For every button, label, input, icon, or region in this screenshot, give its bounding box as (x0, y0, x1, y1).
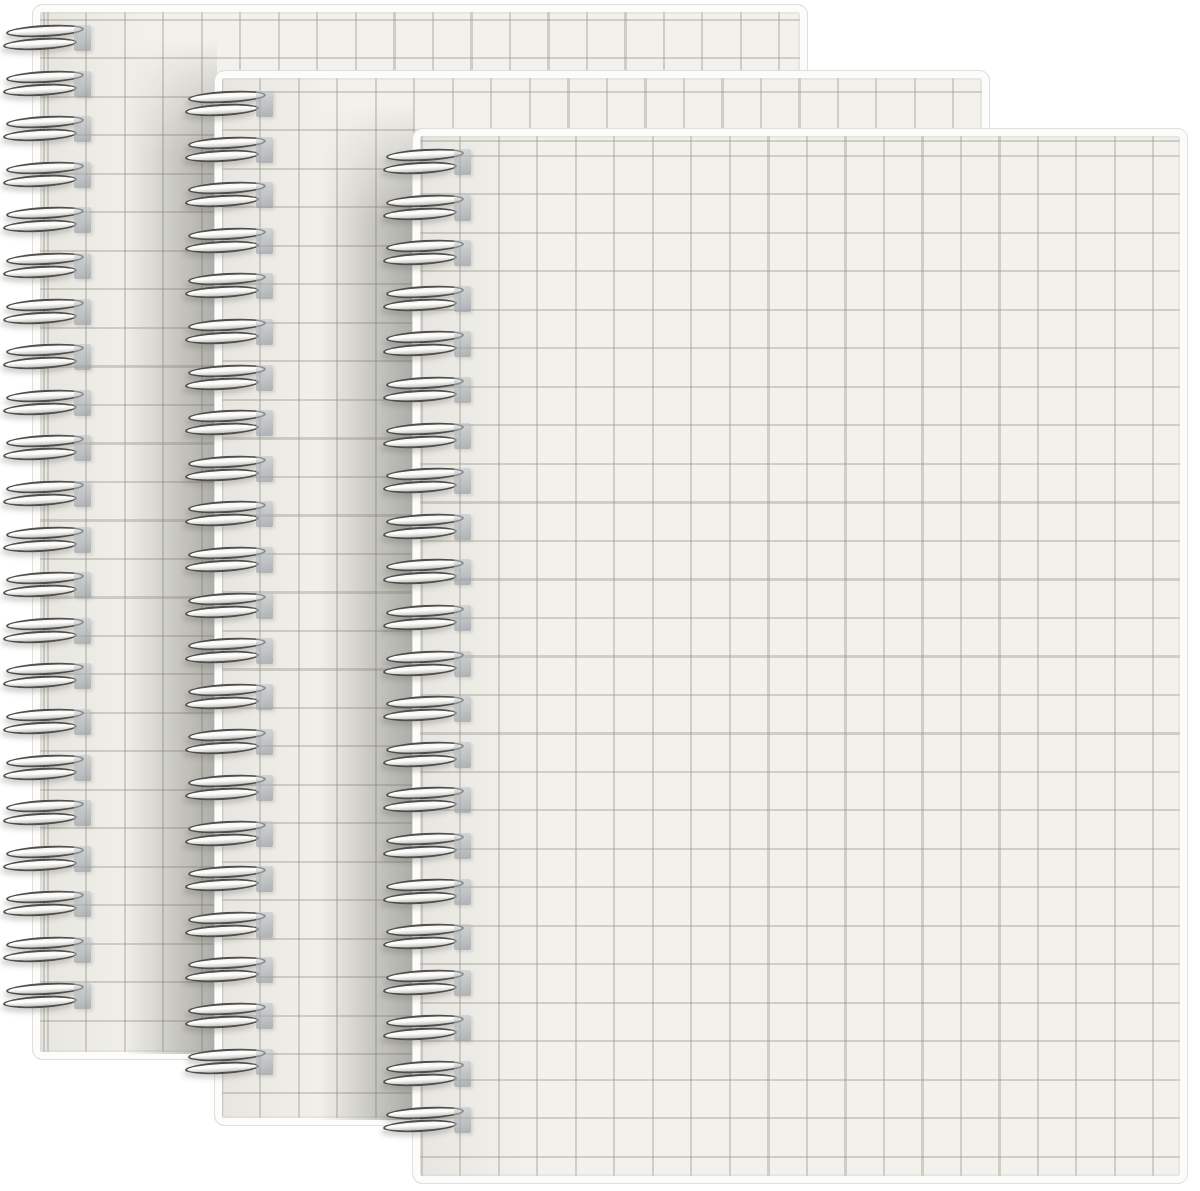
wire-loop-lower (185, 740, 260, 756)
wire-loop-lower (383, 844, 458, 860)
wire-loop-upper (6, 935, 85, 951)
wire-coil (386, 377, 474, 404)
wire-coil (386, 240, 474, 267)
wire-loop-lower (185, 421, 260, 437)
wire-coil (188, 821, 276, 848)
wire-loop-lower (3, 766, 78, 782)
wire-coil (188, 547, 276, 574)
wire-loop-upper (386, 603, 465, 619)
wire-loop-upper (6, 69, 85, 85)
punch-hole (74, 25, 91, 51)
punch-hole (74, 663, 91, 689)
wire-loop-upper (188, 135, 267, 151)
wire-coil (6, 846, 94, 873)
punch-hole (454, 879, 471, 905)
wire-loop-upper (386, 421, 465, 437)
wire-coil (6, 527, 94, 554)
wire-loop-upper (386, 877, 465, 893)
punch-hole (454, 377, 471, 403)
wire-loop-lower (3, 264, 78, 280)
wire-loop-lower (3, 857, 78, 873)
wire-loop-upper (188, 89, 267, 105)
wire-loop-lower (383, 206, 458, 222)
wire-loop-lower (3, 674, 78, 690)
wire-coil (386, 696, 474, 723)
wire-loop-lower (383, 1026, 458, 1042)
wire-loop-lower (3, 811, 78, 827)
wire-loop-lower (3, 948, 78, 964)
wire-coil (188, 1049, 276, 1076)
wire-loop-lower (185, 649, 260, 665)
wire-loop-upper (386, 147, 465, 163)
wire-coil (6, 618, 94, 645)
punch-hole (74, 572, 91, 598)
wire-loop-upper (6, 251, 85, 267)
wire-loop-lower (185, 512, 260, 528)
wire-loop-lower (383, 798, 458, 814)
punch-hole (256, 729, 273, 755)
punch-hole (256, 775, 273, 801)
wire-loop-lower (185, 695, 260, 711)
wire-loop-upper (6, 160, 85, 176)
wire-loop-lower (185, 832, 260, 848)
punch-hole (454, 195, 471, 221)
wire-loop-upper (188, 773, 267, 789)
wire-loop-lower (185, 376, 260, 392)
wire-loop-upper (6, 616, 85, 632)
punch-hole (454, 696, 471, 722)
wire-coil (6, 709, 94, 736)
wire-loop-lower (383, 1118, 458, 1134)
punch-hole (454, 1107, 471, 1133)
wire-loop-lower (185, 102, 260, 118)
wire-loop-lower (3, 994, 78, 1010)
wire-coil (386, 651, 474, 678)
wire-loop-upper (6, 23, 85, 39)
wire-loop-lower (383, 525, 458, 541)
wire-loop-lower (383, 479, 458, 495)
punch-hole (454, 514, 471, 540)
notebook-front (412, 128, 1188, 1184)
wire-coil (386, 1107, 474, 1134)
wire-coil (386, 195, 474, 222)
punch-hole (256, 547, 273, 573)
wire-loop-upper (188, 1001, 267, 1017)
wire-coil (188, 638, 276, 665)
wire-loop-upper (188, 545, 267, 561)
wire-loop-upper (386, 1059, 465, 1075)
wire-coil (6, 116, 94, 143)
wire-loop-upper (188, 226, 267, 242)
wire-coil (188, 273, 276, 300)
punch-hole (256, 273, 273, 299)
wire-loop-upper (6, 479, 85, 495)
punch-hole (256, 228, 273, 254)
wire-coil (386, 559, 474, 586)
wire-loop-lower (185, 467, 260, 483)
wire-loop-upper (188, 317, 267, 333)
punch-hole (454, 286, 471, 312)
punch-hole (74, 983, 91, 1009)
notebook-cover-grid (412, 128, 1188, 1184)
wire-coil (188, 729, 276, 756)
punch-hole (74, 390, 91, 416)
wire-coil (188, 593, 276, 620)
punch-hole (74, 846, 91, 872)
wire-loop-upper (386, 512, 465, 528)
wire-loop-upper (188, 1047, 267, 1063)
wire-coil (188, 91, 276, 118)
wire-coil (386, 742, 474, 769)
punch-hole (454, 970, 471, 996)
wire-loop-upper (6, 707, 85, 723)
wire-loop-lower (185, 786, 260, 802)
wire-coil (188, 410, 276, 437)
wire-loop-upper (386, 284, 465, 300)
wire-loop-upper (188, 910, 267, 926)
punch-hole (74, 481, 91, 507)
wire-loop-lower (383, 388, 458, 404)
punch-hole (454, 833, 471, 859)
punch-hole (256, 866, 273, 892)
punch-hole (454, 559, 471, 585)
punch-hole (74, 937, 91, 963)
punch-hole (256, 821, 273, 847)
wire-loop-upper (6, 753, 85, 769)
punch-hole (74, 162, 91, 188)
punch-hole (454, 787, 471, 813)
wire-loop-upper (386, 193, 465, 209)
wire-loop-upper (6, 297, 85, 313)
wire-loop-lower (383, 707, 458, 723)
punch-hole (454, 240, 471, 266)
wire-coil (188, 137, 276, 164)
wire-coil (188, 365, 276, 392)
wire-coil (6, 71, 94, 98)
wire-coil (386, 787, 474, 814)
wire-loop-lower (3, 720, 78, 736)
wire-loop-lower (185, 1014, 260, 1030)
wire-coil (188, 957, 276, 984)
punch-hole (256, 456, 273, 482)
wire-loop-lower (383, 251, 458, 267)
wire-coil (188, 866, 276, 893)
punch-hole (74, 299, 91, 325)
wire-loop-lower (185, 923, 260, 939)
wire-coil (188, 228, 276, 255)
wire-loop-upper (386, 740, 465, 756)
wire-loop-lower (185, 239, 260, 255)
punch-hole (256, 1049, 273, 1075)
wire-loop-lower (3, 446, 78, 462)
punch-hole (256, 593, 273, 619)
wire-coil (188, 182, 276, 209)
wire-loop-lower (185, 877, 260, 893)
punch-hole (74, 435, 91, 461)
wire-loop-lower (185, 148, 260, 164)
wire-loop-upper (386, 375, 465, 391)
wire-loop-upper (188, 682, 267, 698)
wire-loop-lower (3, 902, 78, 918)
wire-coil (6, 755, 94, 782)
wire-coil (6, 299, 94, 326)
wire-loop-lower (3, 218, 78, 234)
wire-loop-lower (383, 890, 458, 906)
wire-coil (188, 501, 276, 528)
wire-coil (6, 800, 94, 827)
wire-coil (6, 435, 94, 462)
punch-hole (454, 1061, 471, 1087)
wire-loop-lower (185, 193, 260, 209)
wire-loop-upper (188, 363, 267, 379)
wire-loop-lower (185, 968, 260, 984)
punch-hole (256, 1003, 273, 1029)
punch-hole (256, 957, 273, 983)
wire-coil (386, 149, 474, 176)
wire-loop-lower (185, 330, 260, 346)
punch-hole (454, 423, 471, 449)
wire-loop-upper (6, 981, 85, 997)
wire-coil (386, 1061, 474, 1088)
wire-coil (188, 456, 276, 483)
punch-hole (256, 410, 273, 436)
product-photo-scene (0, 0, 1200, 1191)
wire-coil (386, 423, 474, 450)
wire-coil (6, 937, 94, 964)
punch-hole (74, 800, 91, 826)
punch-hole (74, 253, 91, 279)
wire-coil (386, 879, 474, 906)
punch-hole (74, 344, 91, 370)
wire-coil (188, 1003, 276, 1030)
punch-hole (256, 319, 273, 345)
punch-hole (454, 651, 471, 677)
wire-loop-upper (6, 844, 85, 860)
wire-coil (188, 684, 276, 711)
wire-loop-lower (383, 570, 458, 586)
wire-loop-upper (386, 649, 465, 665)
wire-coil (188, 775, 276, 802)
wire-coil (6, 891, 94, 918)
punch-hole (454, 1015, 471, 1041)
wire-loop-lower (383, 342, 458, 358)
wire-loop-lower (3, 538, 78, 554)
punch-hole (454, 742, 471, 768)
wire-loop-upper (386, 968, 465, 984)
wire-loop-lower (383, 616, 458, 632)
punch-hole (454, 924, 471, 950)
wire-coil (6, 207, 94, 234)
wire-loop-lower (3, 310, 78, 326)
punch-hole (74, 116, 91, 142)
punch-hole (454, 331, 471, 357)
wire-loop-lower (3, 82, 78, 98)
wire-coil (386, 331, 474, 358)
wire-coil (386, 514, 474, 541)
wire-coil (386, 970, 474, 997)
wire-coil (386, 833, 474, 860)
wire-loop-upper (188, 454, 267, 470)
wire-loop-lower (3, 492, 78, 508)
wire-coil (6, 572, 94, 599)
punch-hole (256, 182, 273, 208)
punch-hole (454, 605, 471, 631)
wire-loop-upper (188, 591, 267, 607)
wire-loop-upper (386, 831, 465, 847)
wire-coil (6, 983, 94, 1010)
wire-coil (188, 912, 276, 939)
wire-loop-lower (383, 160, 458, 176)
wire-coil (6, 481, 94, 508)
wire-loop-lower (3, 629, 78, 645)
wire-loop-lower (383, 662, 458, 678)
wire-loop-lower (185, 284, 260, 300)
punch-hole (74, 71, 91, 97)
punch-hole (74, 618, 91, 644)
wire-loop-upper (386, 1105, 465, 1121)
wire-coil (6, 162, 94, 189)
wire-loop-lower (383, 297, 458, 313)
punch-hole (74, 755, 91, 781)
wire-coil (386, 468, 474, 495)
wire-coil (386, 1015, 474, 1042)
wire-loop-lower (383, 434, 458, 450)
punch-hole (256, 137, 273, 163)
wire-coil (6, 25, 94, 52)
wire-loop-lower (383, 981, 458, 997)
punch-hole (256, 912, 273, 938)
wire-coil (386, 286, 474, 313)
wire-loop-upper (6, 525, 85, 541)
wire-loop-lower (3, 36, 78, 52)
punch-hole (454, 468, 471, 494)
wire-coil (188, 319, 276, 346)
wire-loop-lower (3, 401, 78, 417)
punch-hole (256, 638, 273, 664)
wire-loop-lower (3, 173, 78, 189)
wire-loop-lower (383, 935, 458, 951)
wire-coil (386, 924, 474, 951)
wire-loop-lower (383, 1072, 458, 1088)
wire-loop-lower (185, 558, 260, 574)
wire-coil (6, 344, 94, 371)
punch-hole (256, 91, 273, 117)
wire-loop-lower (3, 583, 78, 599)
punch-hole (74, 207, 91, 233)
punch-hole (74, 891, 91, 917)
wire-loop-lower (3, 127, 78, 143)
wire-coil (6, 253, 94, 280)
wire-loop-upper (6, 388, 85, 404)
wire-loop-upper (188, 819, 267, 835)
wire-coil (6, 663, 94, 690)
wire-loop-lower (185, 1060, 260, 1076)
wire-loop-lower (185, 604, 260, 620)
wire-loop-lower (383, 753, 458, 769)
punch-hole (256, 501, 273, 527)
punch-hole (74, 527, 91, 553)
wire-coil (386, 605, 474, 632)
wire-coil (6, 390, 94, 417)
punch-hole (454, 149, 471, 175)
punch-hole (256, 365, 273, 391)
punch-hole (256, 684, 273, 710)
wire-loop-lower (3, 355, 78, 371)
punch-hole (74, 709, 91, 735)
